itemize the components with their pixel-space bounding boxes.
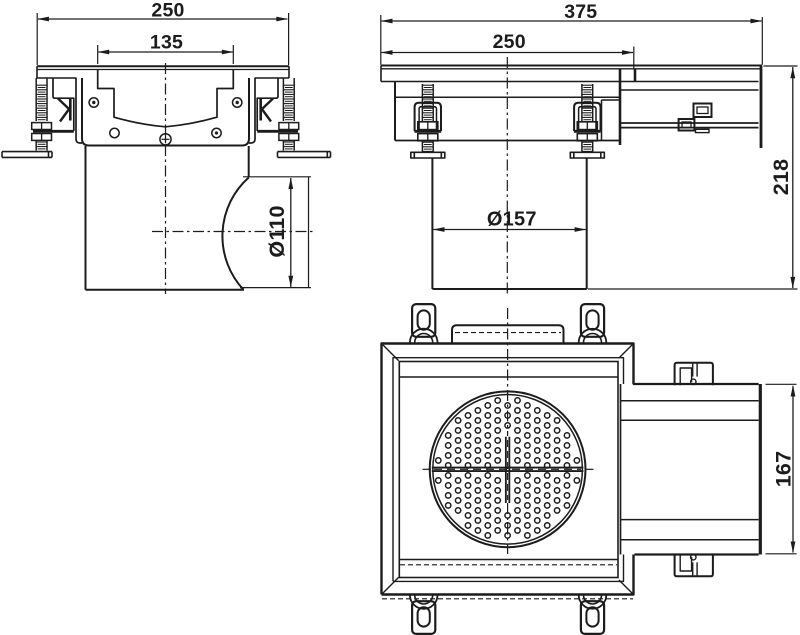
svg-text:Ø157: Ø157 [487, 209, 537, 231]
svg-text:250: 250 [493, 31, 526, 53]
svg-text:167: 167 [772, 451, 796, 487]
svg-text:250: 250 [151, 0, 184, 21]
svg-text:218: 218 [769, 159, 793, 195]
svg-text:375: 375 [564, 1, 597, 23]
svg-text:135: 135 [150, 32, 183, 54]
